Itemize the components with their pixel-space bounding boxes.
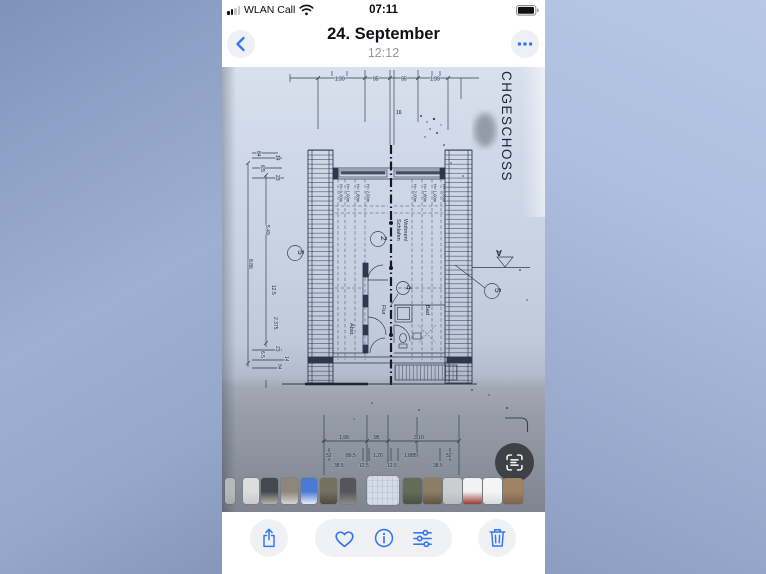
room-label-wohnen: Wohnen/ (402, 219, 408, 242)
room-label-bad: Bad (424, 305, 430, 315)
dim-label: 95 (401, 77, 407, 83)
dim-label: 1,885 (404, 453, 417, 459)
height-label: H= 0,60m (339, 184, 344, 203)
adjust-button[interactable] (410, 526, 435, 551)
height-label: H= 0,60m (442, 184, 447, 203)
thumbnail-blue-sign[interactable] (301, 478, 317, 504)
thumbnail-door[interactable] (281, 478, 298, 504)
share-button[interactable] (250, 519, 288, 557)
thumbnail-interior-green[interactable] (403, 478, 422, 504)
dim-label: 12,5 (387, 463, 397, 469)
thumbnail-wood-interior[interactable] (423, 478, 442, 504)
floorplan-drawing: CHGESCHOSS (222, 67, 545, 512)
nav-bar: 24. September 12:12 (222, 22, 545, 67)
thumbnail-white-wall[interactable] (243, 478, 259, 504)
room-label-flur: Flur (380, 305, 386, 315)
marker-4: 4 (404, 285, 414, 290)
height-label: H= 2,00m (366, 184, 371, 203)
photo-time-subtitle: 12:12 (222, 46, 545, 60)
room-label-schlafen: Schlafen (395, 219, 401, 241)
thumbnail-interior-mixed[interactable] (320, 478, 337, 504)
height-label: H= 1,00m (433, 184, 438, 203)
thumbnail-kitchen-dark[interactable] (261, 478, 278, 504)
dim-label: 84 (276, 364, 282, 370)
dim-label: 6.5 (259, 351, 265, 358)
dim-label: 23 (274, 346, 280, 352)
plan-title-vertical: CHGESCHOSS (499, 71, 514, 182)
dim-label: 1.99 (335, 77, 345, 83)
dim-label: 1.99 (430, 77, 440, 83)
ellipsis-icon (517, 41, 533, 47)
thumbnail-gray-paper[interactable] (443, 478, 462, 504)
height-label: H= 1,80m (423, 184, 428, 203)
thumbnail-document-red[interactable] (463, 478, 482, 504)
live-text-scan-icon (504, 452, 525, 473)
dim-label: 6.5 (259, 165, 265, 172)
marker-2: 2 (379, 236, 389, 241)
more-options-button[interactable] (511, 30, 539, 58)
dim-label: 89,5 (346, 453, 356, 459)
thumbnail-floorplan-current[interactable] (367, 476, 399, 505)
favorite-button[interactable] (332, 526, 357, 551)
share-icon (259, 527, 279, 549)
dim-label: 52 (326, 453, 332, 459)
trash-icon (488, 527, 507, 549)
thumbnail-document-lines[interactable] (483, 478, 502, 504)
marker-5-right: 5 (493, 288, 503, 293)
dim-label: 2.375 (272, 317, 278, 330)
dim-label: 12.5 (270, 285, 276, 295)
info-button[interactable] (371, 526, 396, 551)
phone-screen: WLAN Call 07:11 24. September (222, 0, 545, 574)
dim-label: 16 (396, 110, 402, 116)
dim-label: 14 (274, 155, 280, 161)
status-time: 07:11 (222, 4, 545, 16)
heart-icon (333, 528, 356, 549)
height-label: H= 1,00m (346, 184, 351, 203)
dim-label: 95 (374, 435, 380, 441)
dim-label: 8.86 (247, 259, 253, 269)
thumbnail-dark-room[interactable] (340, 478, 356, 504)
dim-label: 95 (373, 77, 379, 83)
room-label-abst: Abst. (348, 323, 354, 336)
dim-label: 52 (446, 453, 452, 459)
delete-button[interactable] (478, 519, 516, 557)
bottom-toolbar (222, 512, 545, 574)
photo-viewer-floorplan[interactable]: CHGESCHOSS (222, 67, 545, 512)
center-actions-pill (315, 519, 452, 557)
photo-date-title: 24. September (222, 25, 545, 44)
blurred-backdrop-left (0, 0, 223, 574)
dim-label: 1,20 (373, 453, 383, 459)
height-label: H= 2,00m (413, 184, 418, 203)
thumbnail-photo-edge[interactable] (225, 478, 235, 504)
dim-label: 14 (283, 356, 289, 362)
dim-label: 38,5 (334, 463, 344, 469)
height-label: H= 1,80m (356, 184, 361, 203)
marker-5-left: 5 (296, 250, 306, 255)
status-bar: WLAN Call 07:11 (222, 0, 545, 22)
blurred-backdrop-right (544, 0, 766, 574)
dim-label: 12,5 (359, 463, 369, 469)
screenshot-stage: WLAN Call 07:11 24. September (0, 0, 766, 574)
dim-label: 1,99 (339, 435, 349, 441)
dim-label: 23 (274, 175, 280, 181)
dim-label: 84 (255, 151, 261, 157)
info-icon (373, 527, 395, 549)
dim-label: 3,10 (414, 435, 424, 441)
battery-icon (516, 5, 539, 16)
dim-label: 5.49 (264, 225, 270, 235)
thumbnail-warm-interior[interactable] (503, 478, 523, 504)
section-marker-a: A (496, 248, 502, 258)
dim-label: 38,5 (433, 463, 443, 469)
sliders-icon (411, 528, 434, 549)
live-text-button[interactable] (495, 443, 534, 482)
